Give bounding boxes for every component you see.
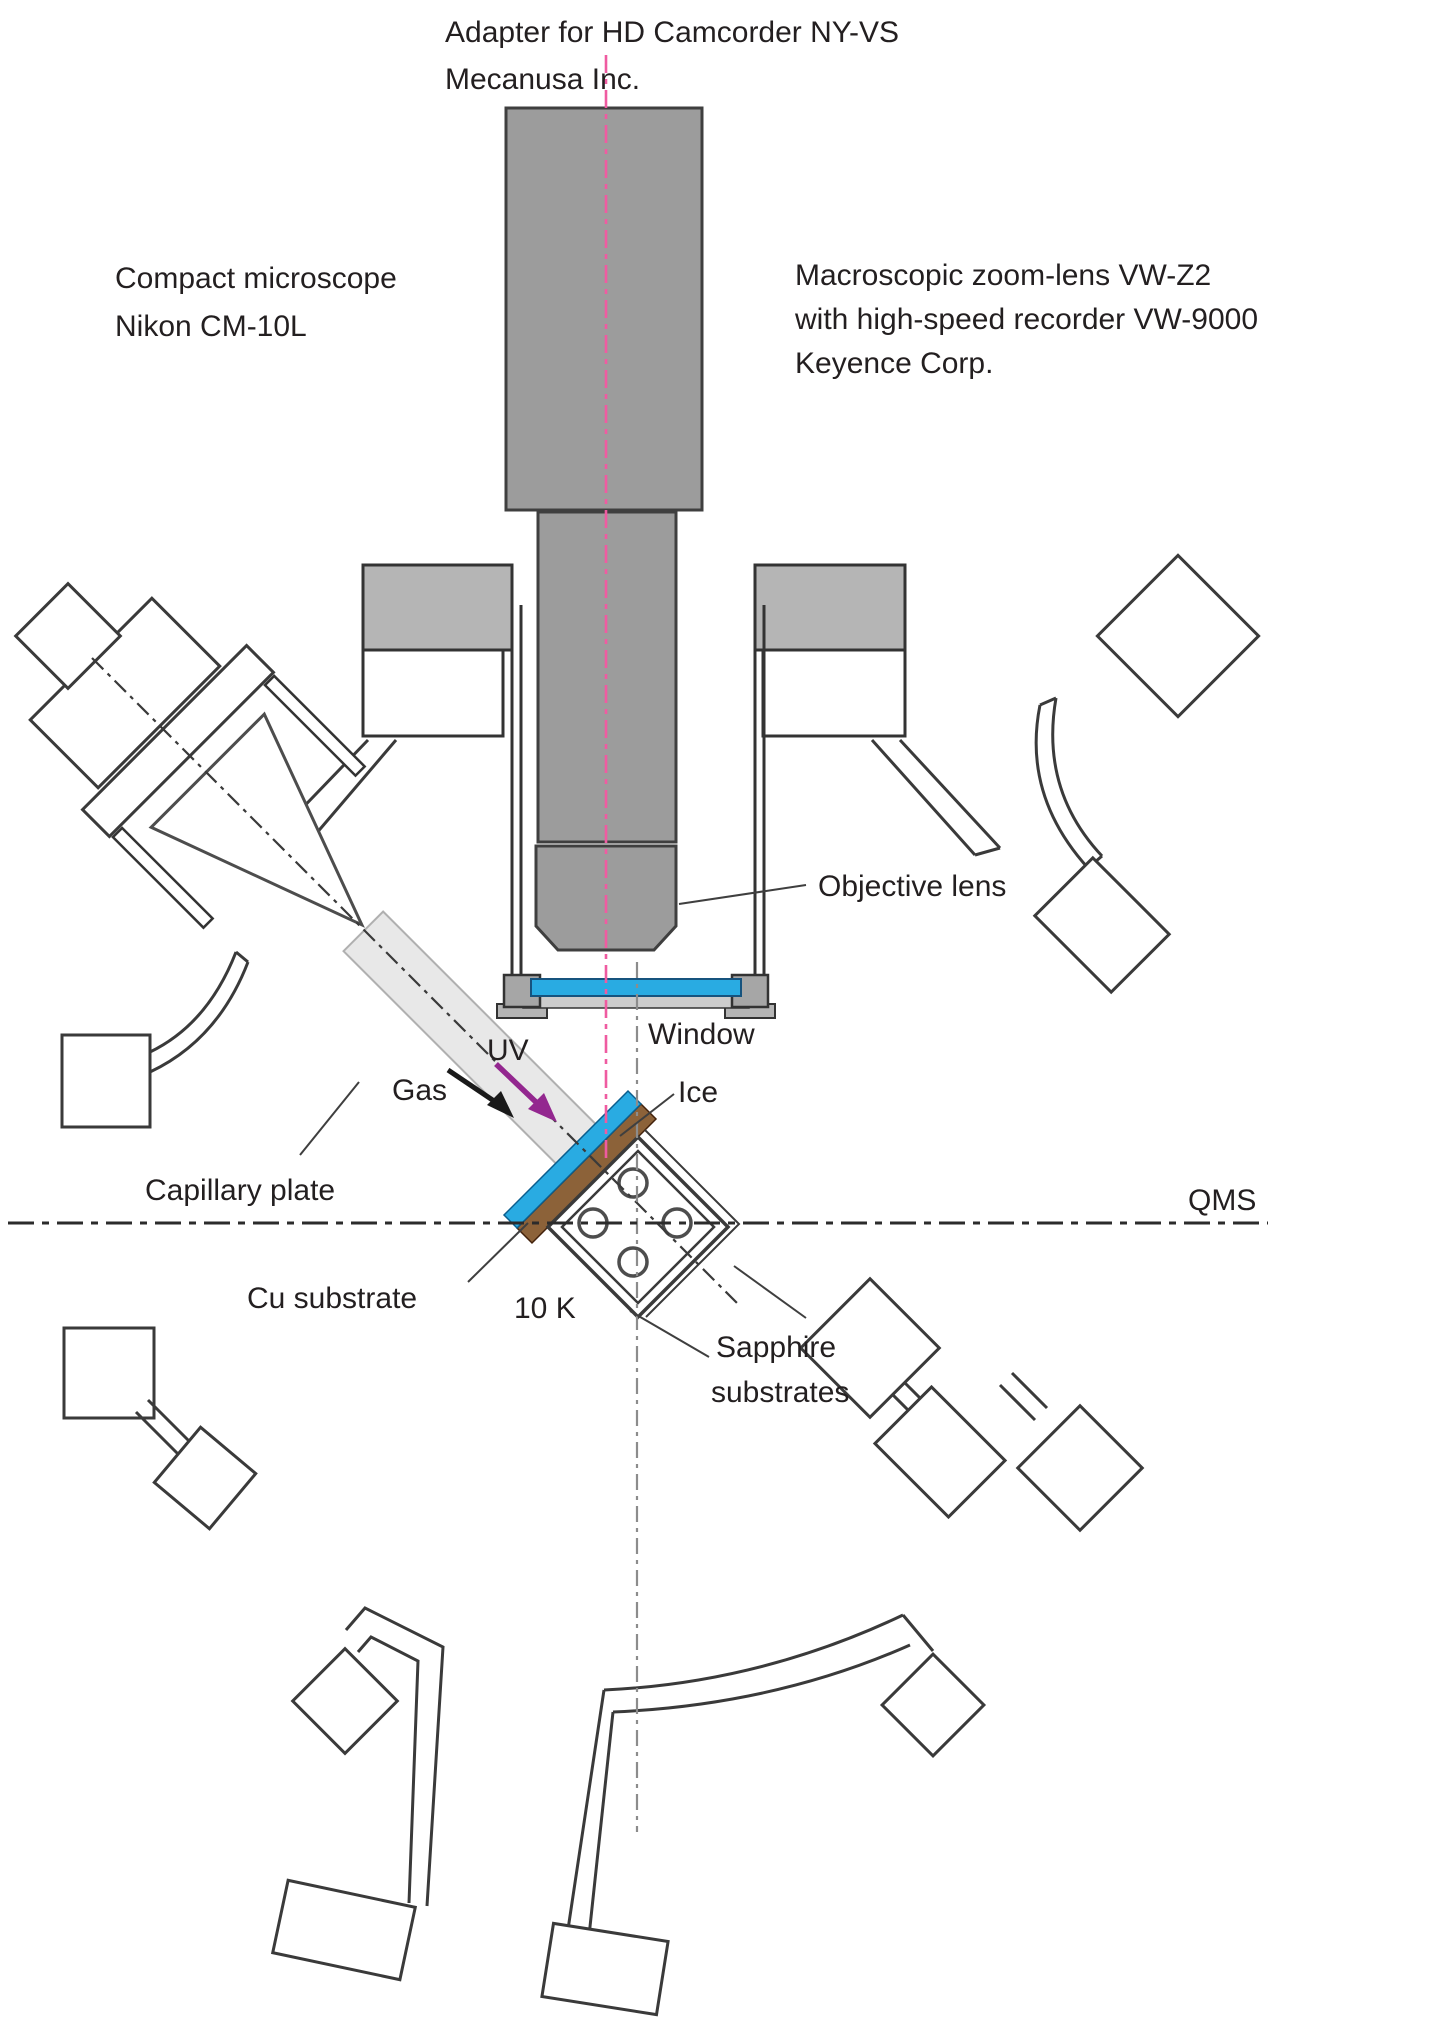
label-adapter-line1: Adapter for HD Camcorder NY-VS <box>445 16 899 49</box>
apparatus-figure: Adapter for HD Camcorder NY-VS Mecanusa … <box>0 0 1440 2029</box>
label-sapphire-line1: Sapphire <box>716 1331 836 1364</box>
label-microscope-line1: Compact microscope <box>115 262 397 295</box>
label-temperature: 10 K <box>514 1292 576 1325</box>
camcorder-adapter-body <box>506 108 702 510</box>
label-objective: Objective lens <box>818 870 1006 903</box>
screw-hole <box>619 1248 647 1276</box>
leader-capillary <box>300 1082 359 1155</box>
label-zoomlens-line3: Keyence Corp. <box>795 347 993 380</box>
label-zoomlens-line1: Macroscopic zoom-lens VW-Z2 <box>795 259 1211 292</box>
label-cu-substrate: Cu substrate <box>247 1282 417 1315</box>
port-bottom-center <box>542 1615 984 2015</box>
leader-sapphire-1 <box>630 1311 709 1357</box>
apparatus-diagram: Adapter for HD Camcorder NY-VS Mecanusa … <box>0 0 1440 2029</box>
port-right-flange <box>755 565 1000 855</box>
label-sapphire-line2: substrates <box>711 1376 849 1409</box>
screw-hole <box>619 1169 647 1197</box>
label-window: Window <box>648 1018 755 1051</box>
label-zoomlens-line2: with high-speed recorder VW-9000 <box>794 303 1258 336</box>
label-uv: UV <box>487 1034 529 1067</box>
label-ice: Ice <box>678 1076 718 1109</box>
port-left-lower <box>64 1328 256 1529</box>
label-microscope-line2: Nikon CM-10L <box>115 310 307 343</box>
port-right-middle <box>1035 555 1259 992</box>
leader-sapphire-2 <box>734 1266 806 1318</box>
label-adapter-line2: Mecanusa Inc. <box>445 63 640 96</box>
label-capillary: Capillary plate <box>145 1174 335 1207</box>
port-bottom-left <box>273 1608 443 1980</box>
leader-objective <box>679 885 806 904</box>
label-qms: QMS <box>1188 1184 1256 1217</box>
port-far-right-lower <box>1000 1373 1142 1530</box>
label-gas: Gas <box>392 1074 447 1107</box>
port-left-middle <box>62 952 248 1127</box>
leader-cu <box>468 1223 528 1282</box>
